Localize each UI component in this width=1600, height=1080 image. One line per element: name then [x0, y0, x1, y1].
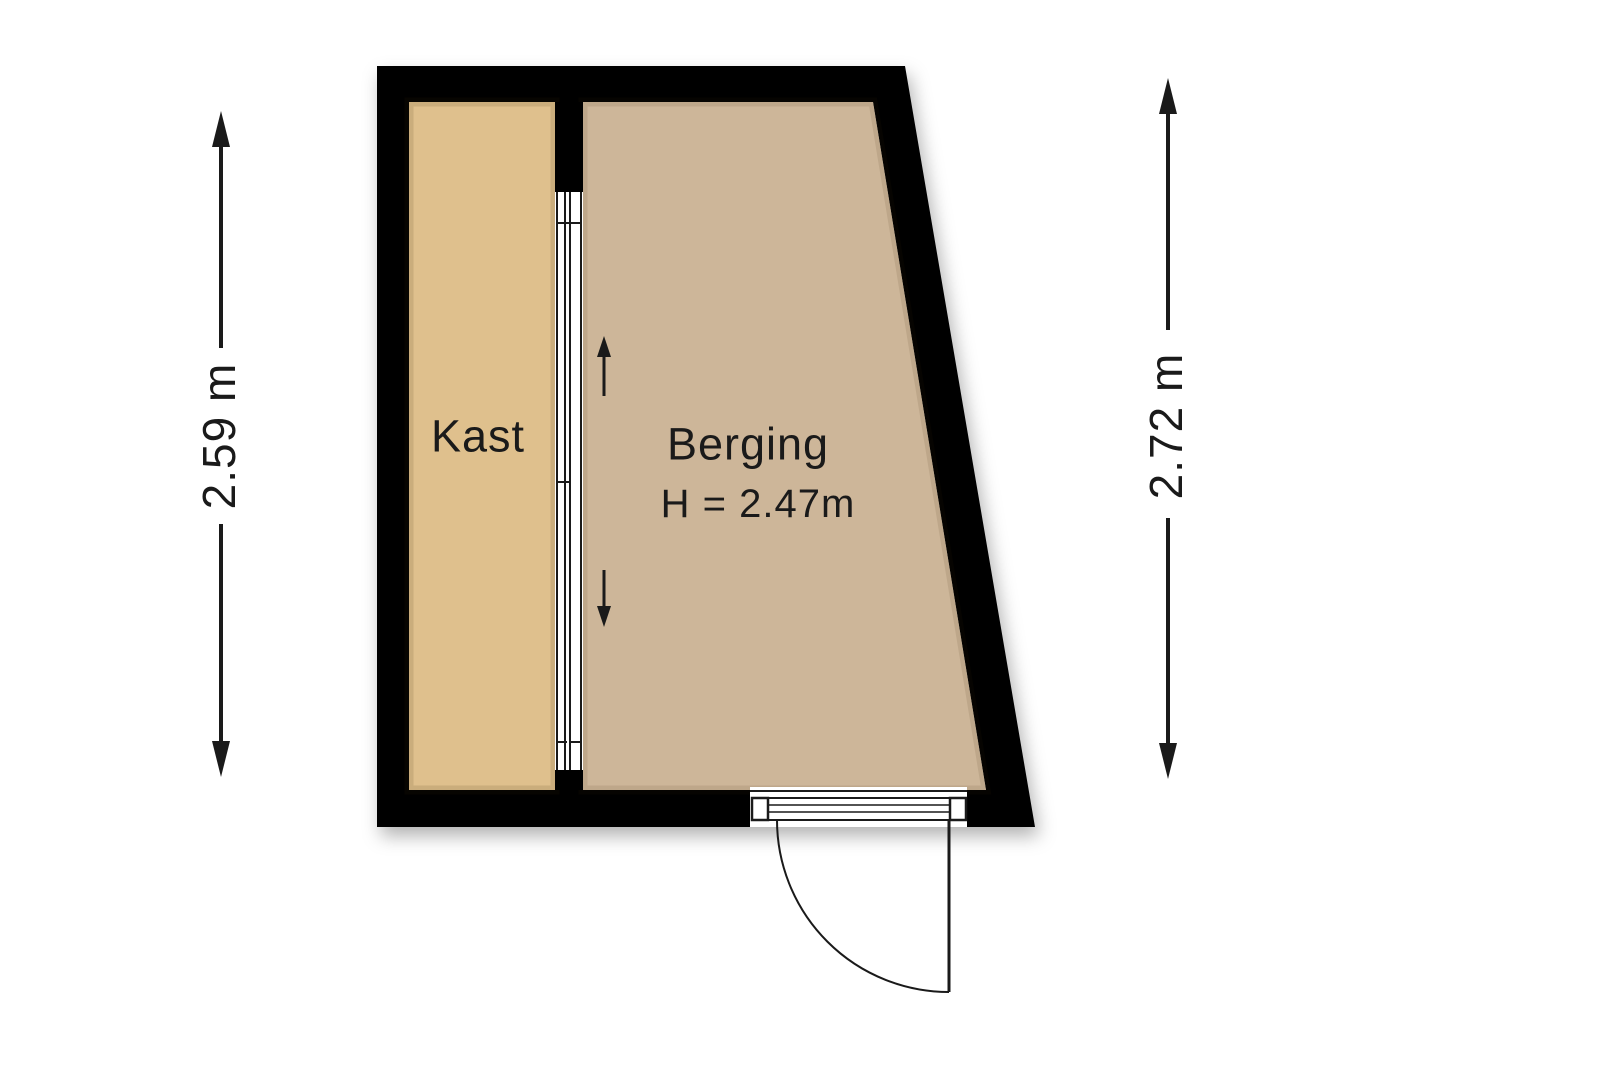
dimension-arrowhead-left-bottom — [212, 741, 230, 777]
room-height-label: H = 2.47m — [661, 484, 856, 524]
dimension-label-right: 2.72 m — [1143, 353, 1189, 500]
dimension-arrowhead-left-top — [212, 111, 230, 147]
partition-wall-bottom-stub — [555, 770, 583, 790]
floorplan-canvas: Kast Berging H = 2.47m 2.59 m 2.72 m — [0, 0, 1600, 1080]
door-jamb-right — [950, 798, 966, 820]
entrance-door-swing — [777, 820, 949, 992]
partition-wall-top-stub — [555, 102, 583, 192]
floorplan-drawing — [0, 0, 1600, 1080]
sliding-door — [555, 192, 583, 770]
dimension-label-left: 2.59 m — [196, 363, 242, 510]
door-jamb-left — [752, 798, 768, 820]
dimension-arrowhead-right-bottom — [1159, 743, 1177, 779]
door-swing-arc — [777, 820, 949, 992]
entrance-door-opening — [750, 787, 967, 827]
room-label-berging: Berging — [667, 422, 829, 467]
door-threshold — [768, 798, 950, 820]
room-label-kast: Kast — [431, 414, 525, 459]
dimension-arrowhead-right-top — [1159, 78, 1177, 114]
